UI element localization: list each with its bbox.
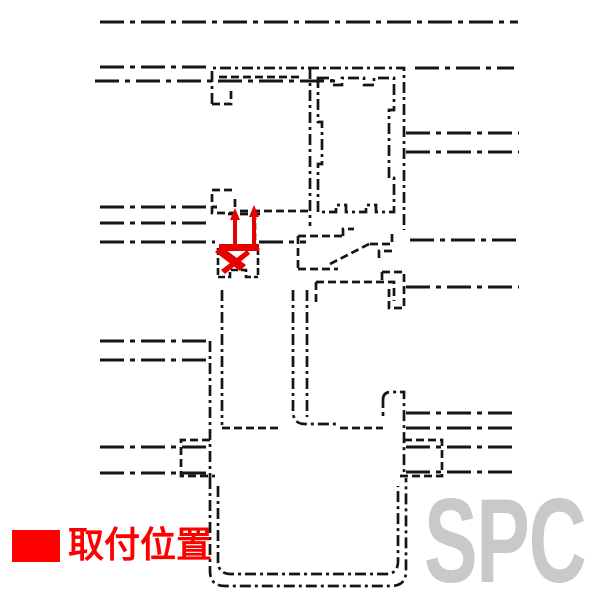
diagram-canvas: SPC 取付位置	[0, 0, 600, 600]
mounting-position-marker	[215, 205, 259, 274]
frame-outlines	[181, 68, 442, 586]
legend-label: 取付位置	[68, 522, 212, 568]
legend-color-swatch	[12, 530, 60, 562]
spc-watermark: SPC	[424, 481, 585, 601]
